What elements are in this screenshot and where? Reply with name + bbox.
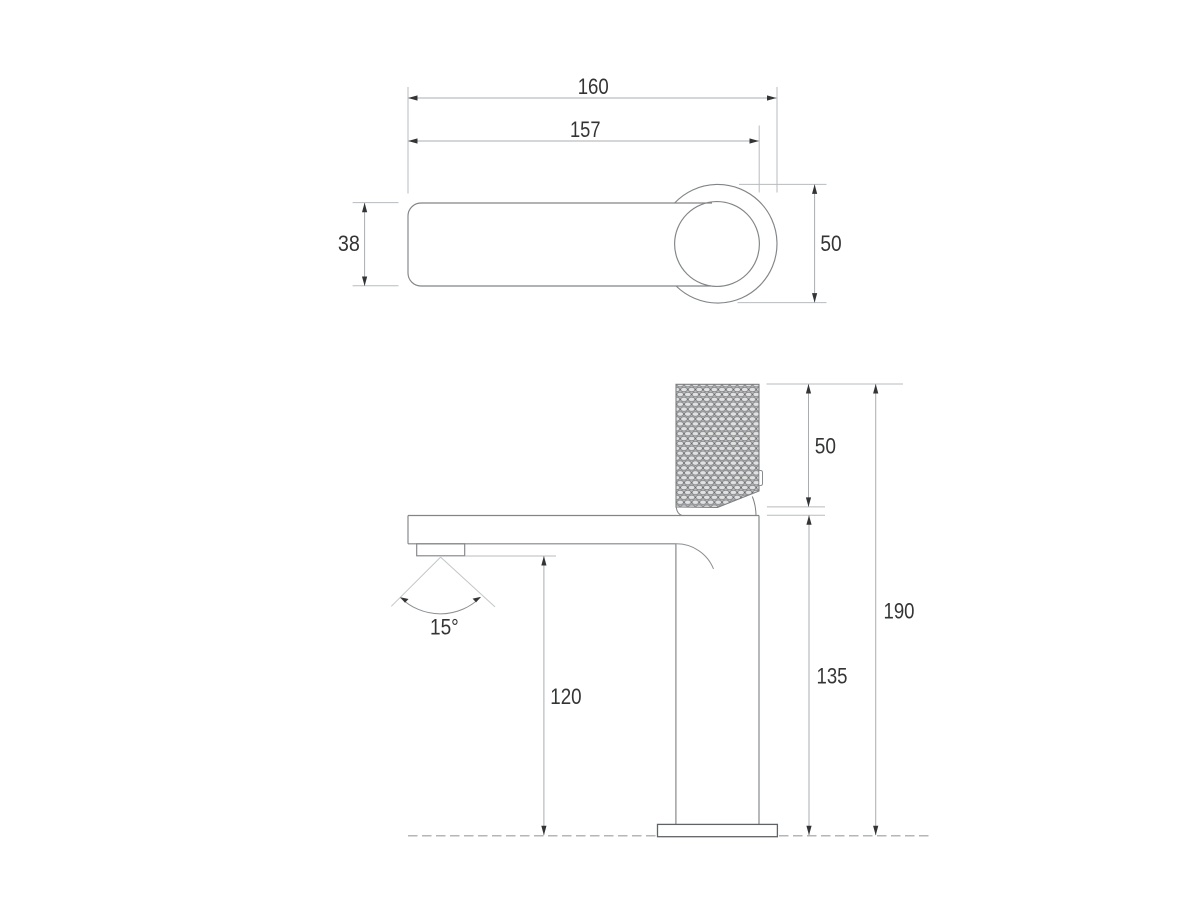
svg-text:157: 157: [570, 117, 601, 142]
svg-text:120: 120: [550, 684, 581, 709]
svg-text:190: 190: [884, 599, 915, 624]
svg-text:50: 50: [820, 231, 841, 256]
svg-text:50: 50: [815, 433, 836, 458]
svg-text:135: 135: [817, 664, 848, 689]
svg-text:15°: 15°: [430, 614, 459, 639]
svg-text:160: 160: [578, 74, 609, 99]
svg-text:38: 38: [338, 231, 360, 256]
